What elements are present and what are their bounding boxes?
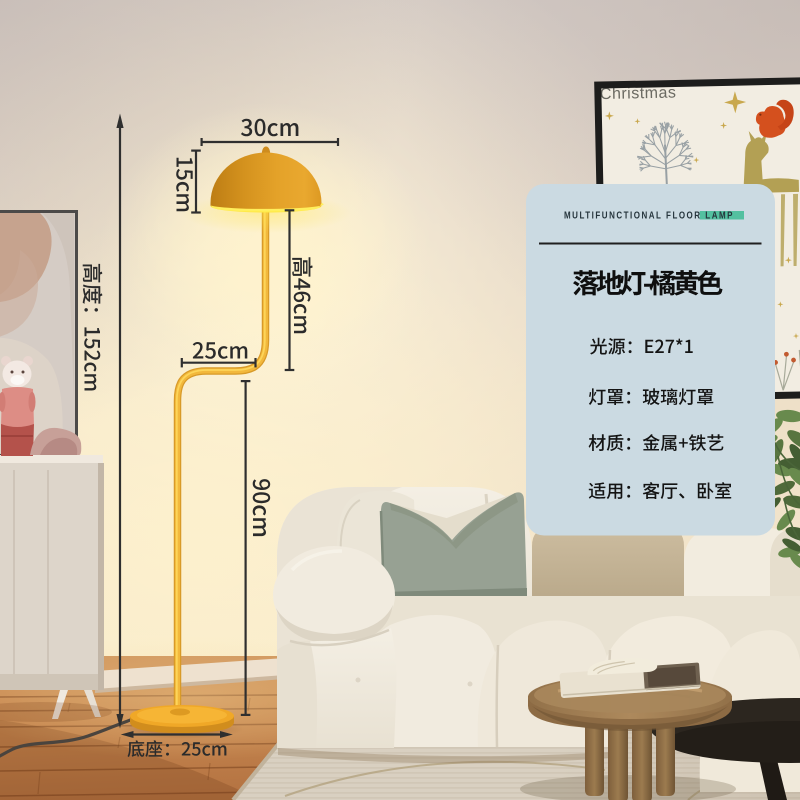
svg-text:MULTIFUNCTIONAL FLOOR LAMP: MULTIFUNCTIONAL FLOOR LAMP: [564, 210, 734, 222]
